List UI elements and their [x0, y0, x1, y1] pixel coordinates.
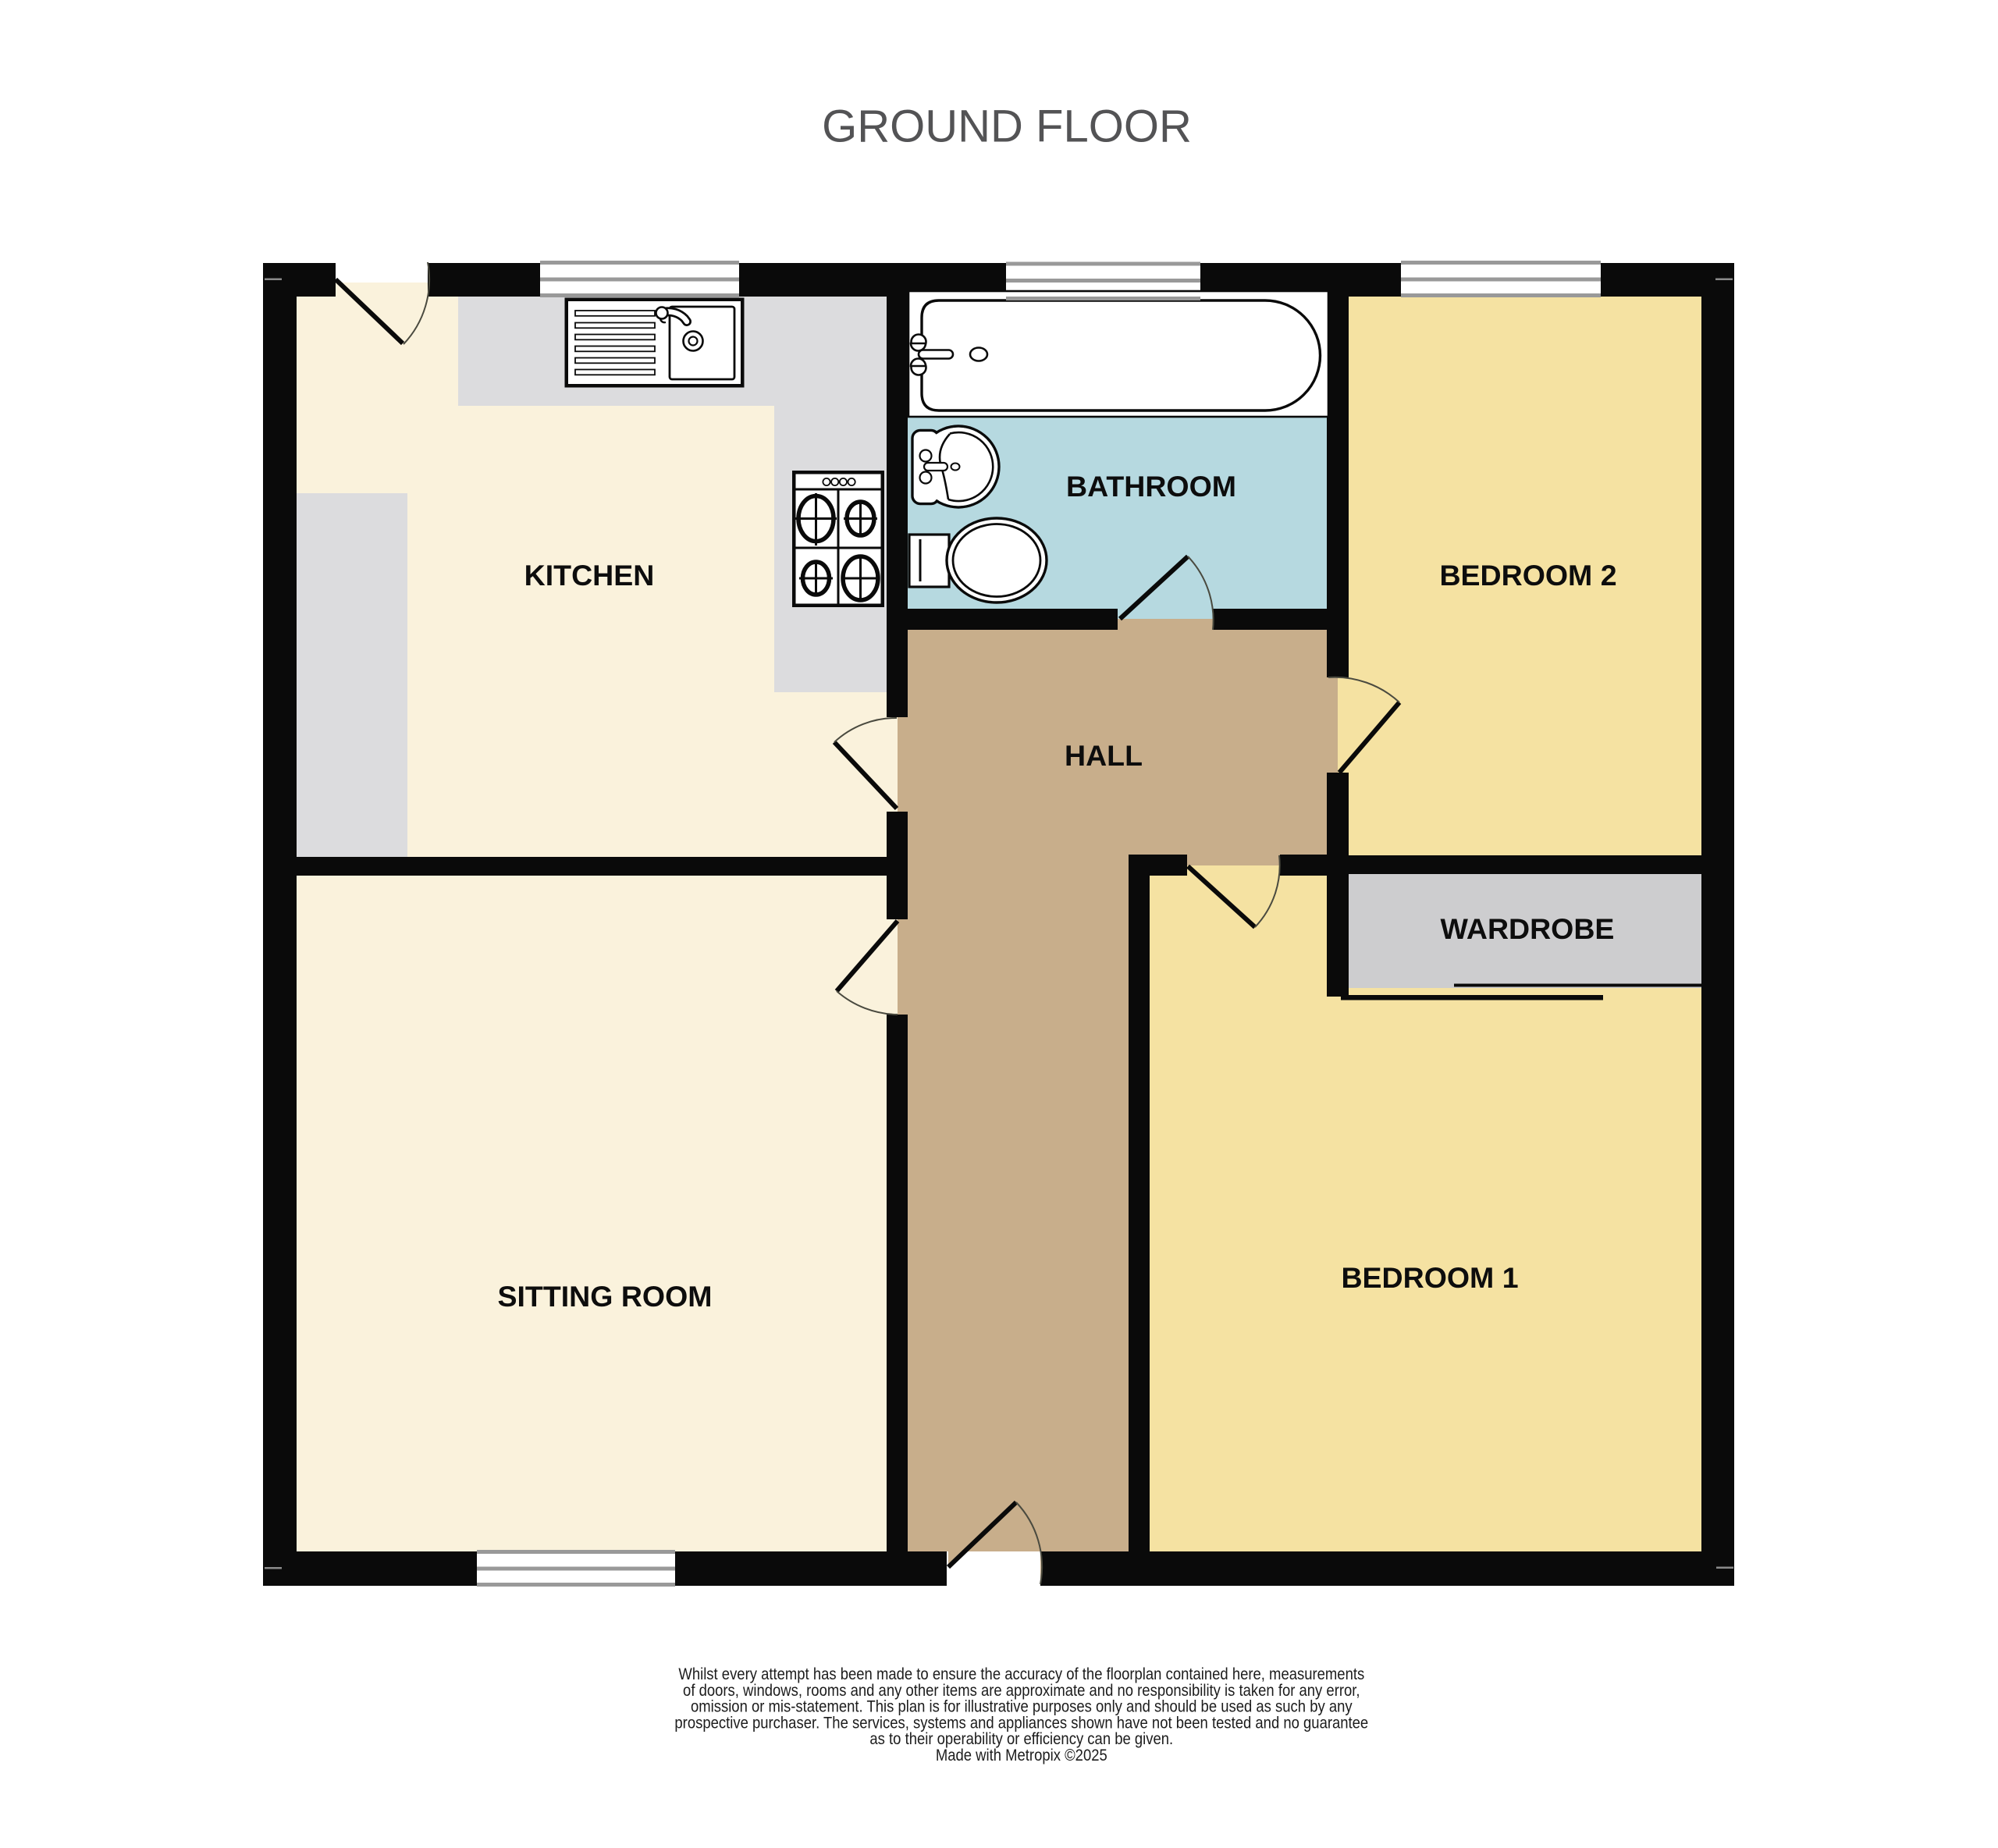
svg-text:BATHROOM: BATHROOM	[1066, 470, 1236, 503]
svg-text:SITTING ROOM: SITTING ROOM	[498, 1280, 713, 1313]
svg-text:BEDROOM 1: BEDROOM 1	[1341, 1261, 1518, 1294]
svg-text:BEDROOM 2: BEDROOM 2	[1439, 559, 1616, 592]
svg-text:WARDROBE: WARDROBE	[1441, 912, 1615, 945]
svg-text:Made with Metropix ©2025: Made with Metropix ©2025	[936, 1747, 1107, 1764]
svg-text:KITCHEN: KITCHEN	[524, 559, 655, 592]
svg-text:HALL: HALL	[1065, 739, 1143, 772]
svg-text:GROUND FLOOR: GROUND FLOOR	[822, 101, 1192, 152]
